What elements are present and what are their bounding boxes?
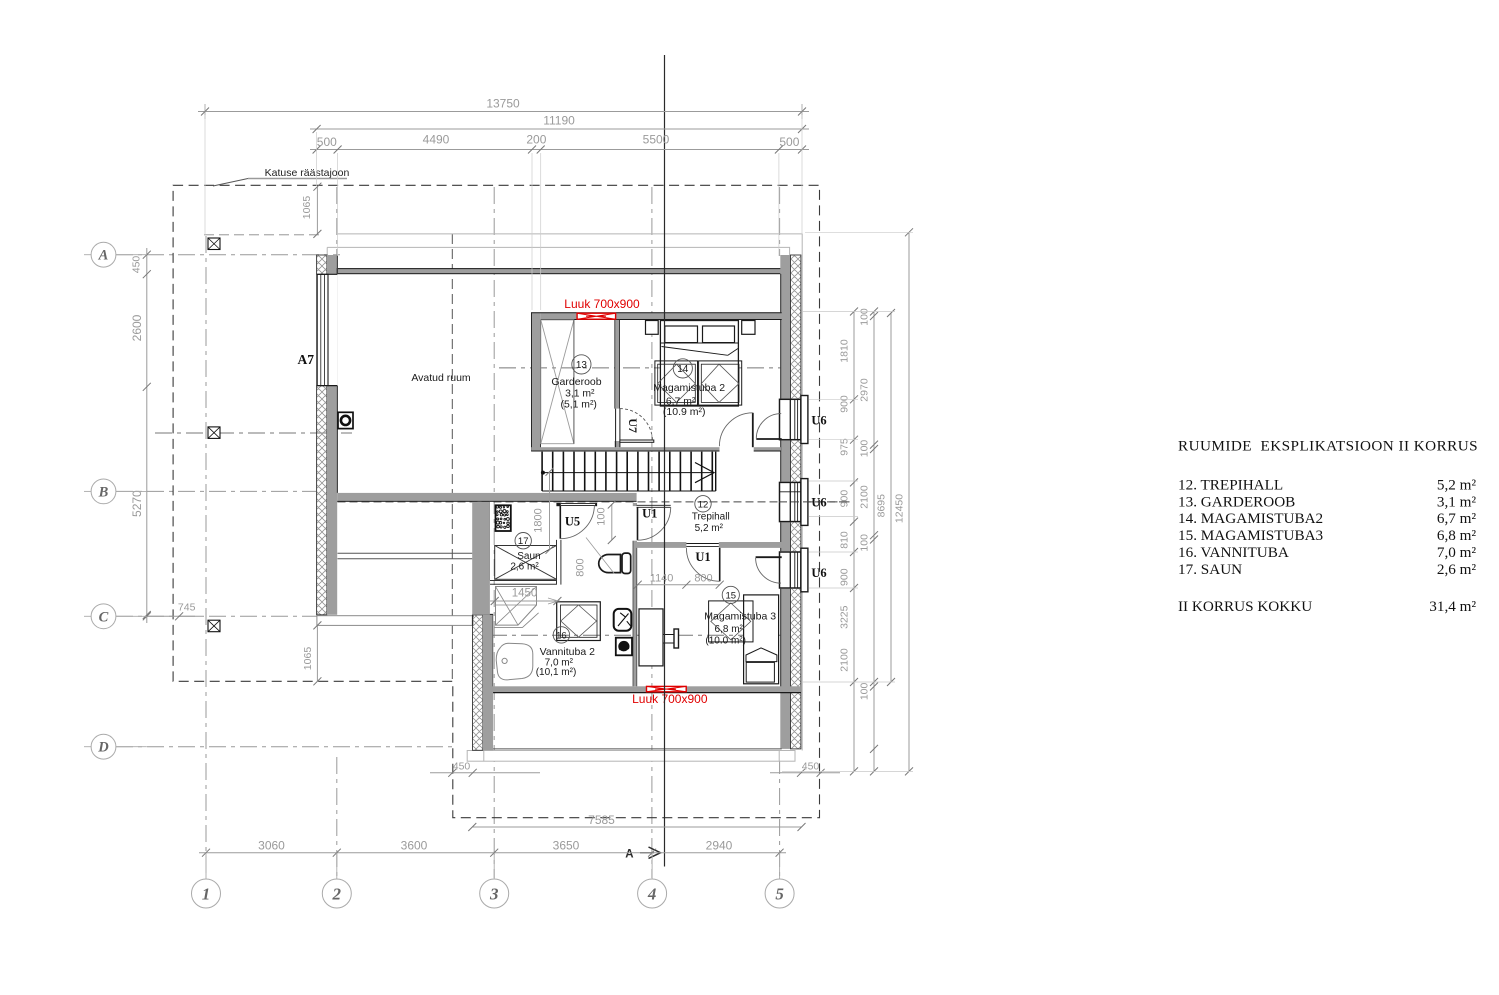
svg-text:2100: 2100 — [859, 485, 871, 509]
svg-text:200: 200 — [526, 133, 546, 147]
svg-text:450: 450 — [802, 761, 820, 773]
svg-text:100: 100 — [859, 308, 871, 326]
svg-text:Garderoob: Garderoob — [551, 376, 601, 388]
svg-text:3,1 m²: 3,1 m² — [565, 389, 595, 400]
svg-text:12: 12 — [698, 499, 709, 510]
svg-text:3600: 3600 — [401, 839, 428, 853]
svg-text:(10.0 m²): (10.0 m²) — [705, 635, 746, 646]
svg-text:2100: 2100 — [839, 648, 851, 672]
svg-text:1810: 1810 — [839, 339, 851, 363]
svg-text:100: 100 — [859, 682, 871, 700]
svg-text:(10,1 m²): (10,1 m²) — [536, 667, 577, 678]
svg-text:500: 500 — [317, 135, 337, 149]
svg-text:13: 13 — [576, 360, 588, 371]
svg-text:5,2 m²: 5,2 m² — [695, 523, 724, 534]
svg-text:450: 450 — [131, 256, 143, 274]
svg-text:900: 900 — [839, 490, 851, 508]
svg-text:2,6 m²: 2,6 m² — [510, 562, 539, 573]
svg-text:5: 5 — [775, 885, 784, 904]
svg-text:Katuse räästajoon: Katuse räästajoon — [265, 167, 350, 179]
svg-text:500: 500 — [779, 135, 799, 149]
svg-text:II KORRUS KOKKU: II KORRUS KOKKU — [1178, 598, 1312, 615]
svg-text:900: 900 — [839, 568, 851, 586]
svg-text:800: 800 — [575, 558, 587, 576]
svg-text:100: 100 — [859, 440, 871, 458]
svg-text:13750: 13750 — [486, 97, 520, 111]
svg-text:975: 975 — [839, 438, 851, 456]
svg-text:14. MAGAMISTUBA2: 14. MAGAMISTUBA2 — [1178, 510, 1323, 527]
svg-text:17. SAUN: 17. SAUN — [1178, 561, 1242, 578]
svg-text:2940: 2940 — [706, 839, 733, 853]
svg-text:U5: U5 — [565, 515, 580, 529]
svg-text:12450: 12450 — [894, 494, 906, 523]
svg-text:6,8 m²: 6,8 m² — [1437, 527, 1477, 544]
svg-text:A: A — [625, 849, 633, 861]
svg-text:7585: 7585 — [588, 813, 615, 827]
svg-text:1: 1 — [202, 885, 211, 904]
svg-text:Luuk 700x900: Luuk 700x900 — [632, 692, 708, 706]
svg-text:U6: U6 — [811, 414, 826, 428]
svg-text:U6: U6 — [811, 496, 826, 510]
svg-text:5500: 5500 — [643, 133, 670, 147]
svg-text:6,8 m²: 6,8 m² — [715, 624, 744, 635]
svg-text:100: 100 — [859, 534, 871, 552]
svg-text:800: 800 — [694, 573, 712, 585]
svg-text:Avatud ruum: Avatud ruum — [411, 372, 471, 384]
svg-text:(10.9 m²): (10.9 m²) — [663, 406, 706, 418]
svg-text:14: 14 — [677, 364, 689, 375]
svg-text:U1: U1 — [695, 550, 710, 564]
svg-text:U1: U1 — [642, 507, 657, 521]
svg-text:11190: 11190 — [543, 114, 575, 128]
svg-text:Trepihall: Trepihall — [692, 512, 730, 523]
svg-text:5270: 5270 — [130, 490, 144, 517]
svg-text:Magamistuba 3: Magamistuba 3 — [704, 610, 776, 622]
svg-text:7,0 m²: 7,0 m² — [1437, 544, 1477, 561]
svg-text:3,1 m²: 3,1 m² — [1437, 493, 1477, 510]
svg-text:16. VANNITUBA: 16. VANNITUBA — [1178, 544, 1289, 561]
svg-text:17: 17 — [518, 536, 529, 547]
svg-text:15: 15 — [726, 590, 737, 601]
svg-text:12. TREPIHALL: 12. TREPIHALL — [1178, 476, 1283, 493]
svg-text:2,6 m²: 2,6 m² — [1437, 561, 1477, 578]
svg-text:31,4 m²: 31,4 m² — [1429, 598, 1476, 615]
svg-text:B: B — [98, 484, 109, 500]
svg-text:450: 450 — [453, 761, 471, 773]
svg-text:4490: 4490 — [423, 133, 450, 147]
svg-text:U6: U6 — [811, 566, 826, 580]
svg-text:16: 16 — [556, 630, 567, 641]
svg-text:6,7 m²: 6,7 m² — [1437, 510, 1477, 527]
svg-text:U7: U7 — [626, 418, 640, 433]
svg-text:745: 745 — [178, 602, 196, 614]
svg-text:15. MAGAMISTUBA3: 15. MAGAMISTUBA3 — [1178, 527, 1323, 544]
svg-text:4: 4 — [647, 885, 657, 904]
svg-text:810: 810 — [839, 531, 851, 549]
svg-text:13. GARDEROOB: 13. GARDEROOB — [1178, 493, 1295, 510]
svg-text:2: 2 — [332, 885, 342, 904]
svg-text:100: 100 — [595, 507, 607, 525]
svg-text:D: D — [97, 740, 109, 756]
svg-text:3: 3 — [489, 885, 499, 904]
svg-text:3060: 3060 — [258, 839, 285, 853]
svg-text:5,2 m²: 5,2 m² — [1437, 476, 1477, 493]
svg-text:1450: 1450 — [512, 588, 538, 600]
svg-text:RUUMIDE EKSPLIKATSIOON II KOR: RUUMIDE EKSPLIKATSIOON II KORRUS — [1178, 438, 1478, 455]
svg-text:Saun: Saun — [517, 551, 540, 562]
svg-text:A7: A7 — [298, 352, 315, 367]
svg-text:2600: 2600 — [130, 314, 144, 341]
svg-text:(5,1 m²): (5,1 m²) — [561, 400, 597, 411]
svg-text:900: 900 — [839, 395, 851, 413]
svg-text:1140: 1140 — [650, 573, 674, 585]
svg-text:1065: 1065 — [302, 647, 314, 671]
svg-text:Luuk 700x900: Luuk 700x900 — [564, 297, 640, 311]
svg-text:C: C — [99, 609, 109, 625]
svg-text:8695: 8695 — [876, 494, 888, 518]
svg-text:A: A — [98, 248, 109, 264]
svg-text:1065: 1065 — [301, 196, 313, 220]
svg-text:2970: 2970 — [859, 378, 871, 402]
svg-text:Vannituba 2: Vannituba 2 — [540, 646, 595, 658]
svg-text:3650: 3650 — [553, 839, 580, 853]
svg-text:Magamistuba 2: Magamistuba 2 — [653, 382, 725, 394]
svg-text:3225: 3225 — [839, 605, 851, 629]
svg-text:1800: 1800 — [533, 508, 545, 532]
